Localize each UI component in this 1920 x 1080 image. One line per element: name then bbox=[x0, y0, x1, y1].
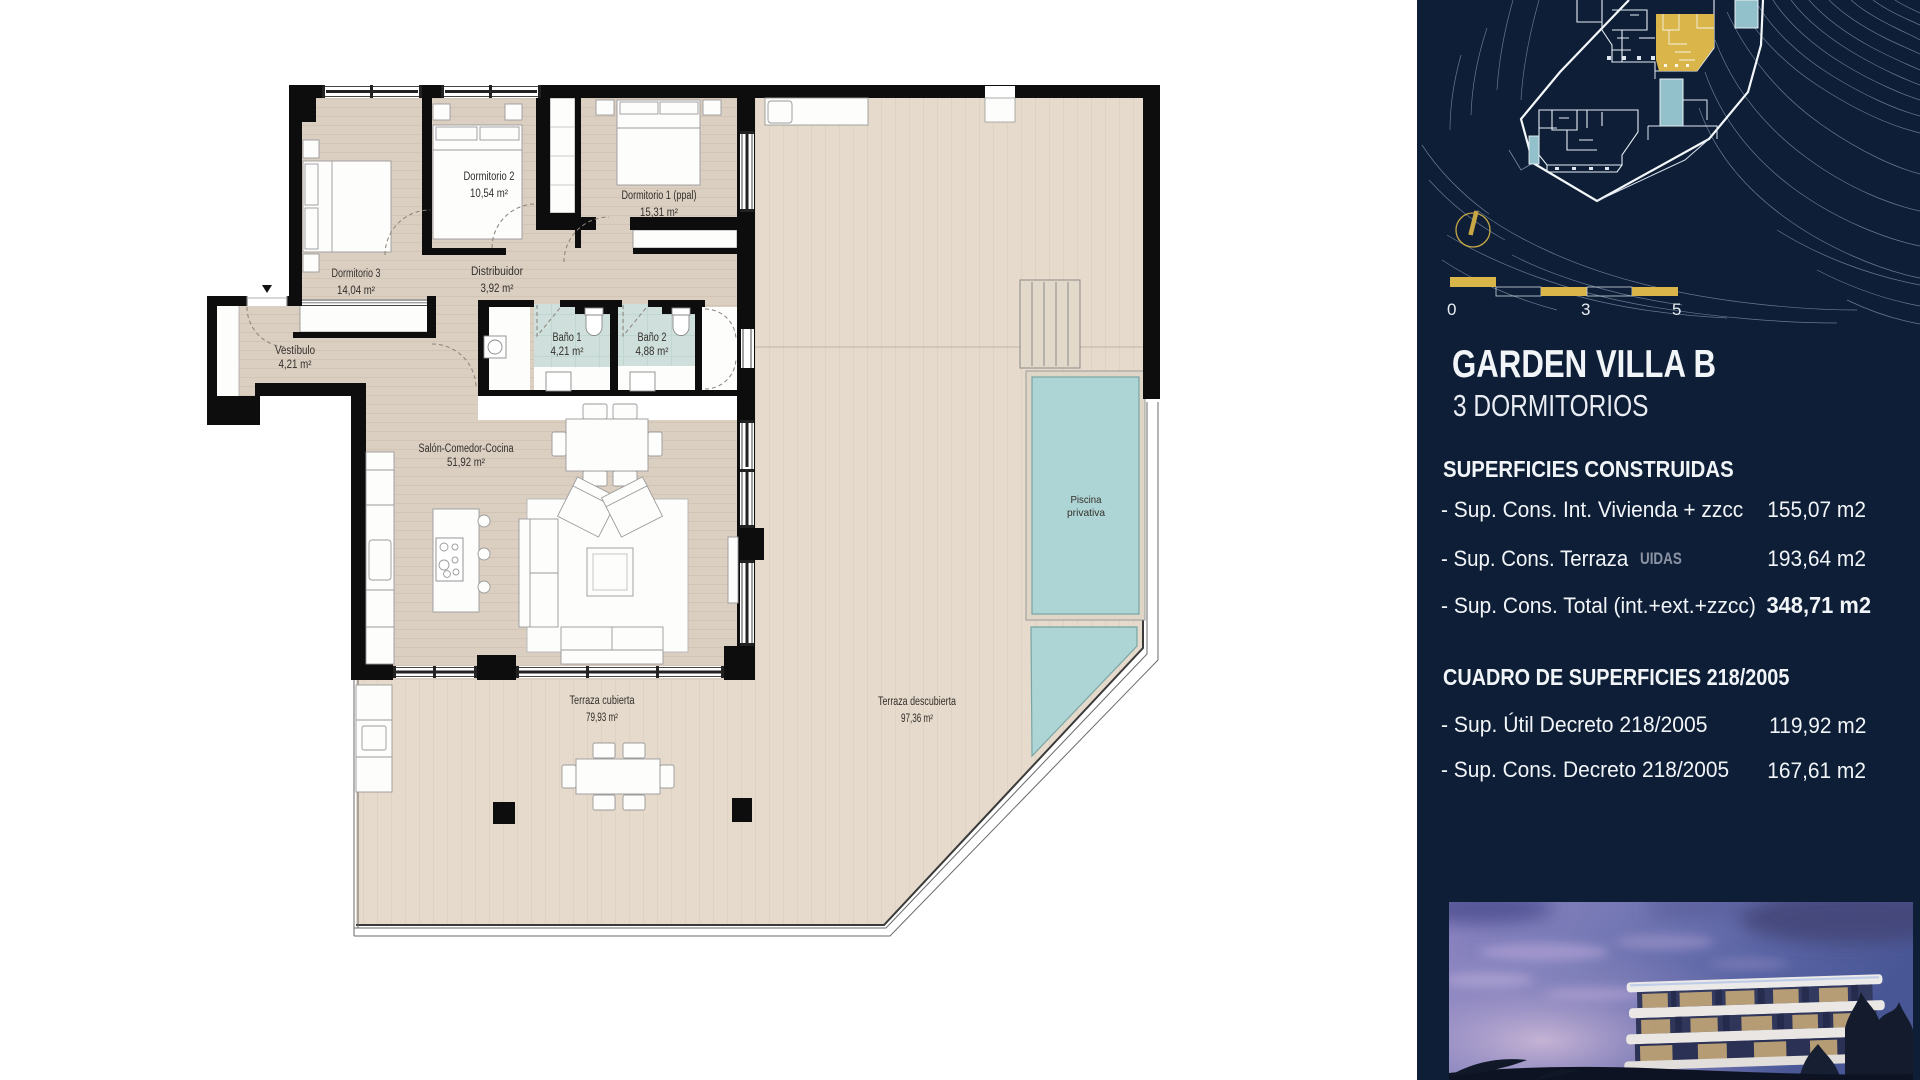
svg-text:79,93 m²: 79,93 m² bbox=[586, 712, 618, 724]
svg-text:4,88 m²: 4,88 m² bbox=[636, 346, 669, 358]
svg-text:0: 0 bbox=[1447, 300, 1456, 319]
svg-text:10,54 m²: 10,54 m² bbox=[470, 188, 508, 200]
svg-text:3,92 m²: 3,92 m² bbox=[481, 283, 514, 295]
svg-text:privativa: privativa bbox=[1067, 507, 1105, 519]
svg-text:Terraza descubierta: Terraza descubierta bbox=[878, 696, 956, 708]
svg-text:Piscina: Piscina bbox=[1071, 494, 1102, 506]
svg-text:15,31 m²: 15,31 m² bbox=[640, 207, 678, 219]
svg-text:Dormitorio 3: Dormitorio 3 bbox=[332, 268, 381, 280]
svg-text:Vestíbulo: Vestíbulo bbox=[275, 345, 315, 357]
svg-text:14,04 m²: 14,04 m² bbox=[337, 285, 375, 297]
svg-text:Terraza cubierta: Terraza cubierta bbox=[570, 695, 635, 707]
svg-text:Dormitorio 1 (ppal): Dormitorio 1 (ppal) bbox=[622, 190, 697, 202]
svg-text:97,36 m²: 97,36 m² bbox=[901, 713, 933, 725]
svg-text:Baño 1: Baño 1 bbox=[553, 332, 582, 344]
svg-text:3: 3 bbox=[1581, 300, 1590, 319]
svg-text:4,21 m²: 4,21 m² bbox=[279, 359, 312, 371]
svg-text:Dormitorio 2: Dormitorio 2 bbox=[464, 171, 515, 183]
svg-text:Distribuidor: Distribuidor bbox=[471, 266, 523, 278]
svg-text:Baño 2: Baño 2 bbox=[638, 332, 667, 344]
svg-text:Salón-Comedor-Cocina: Salón-Comedor-Cocina bbox=[419, 443, 514, 455]
svg-text:51,92 m²: 51,92 m² bbox=[447, 457, 485, 469]
svg-text:5: 5 bbox=[1672, 300, 1681, 319]
svg-text:4,21 m²: 4,21 m² bbox=[551, 346, 584, 358]
